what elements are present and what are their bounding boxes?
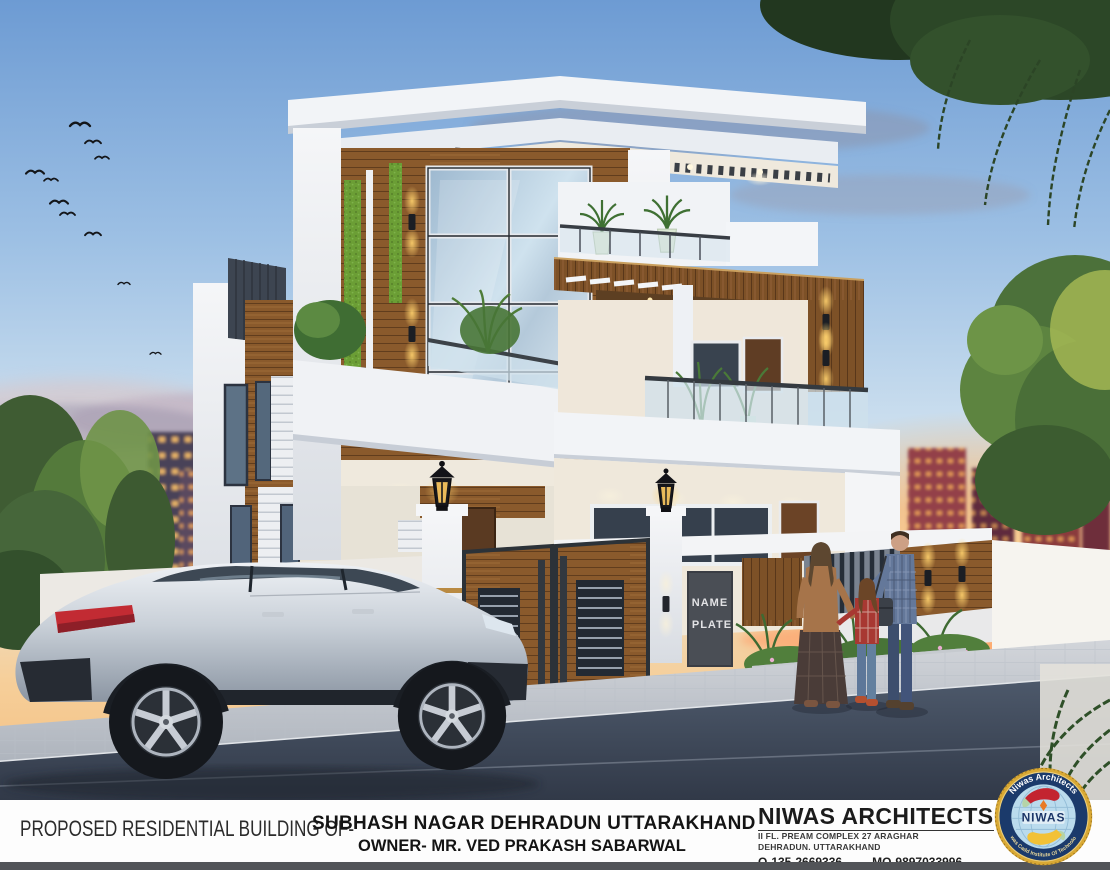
firm-address-line1: II FL. PREAM COMPLEX 27 ARAGHAR	[758, 831, 1008, 842]
architectural-render: NAME PLATE	[0, 0, 1110, 800]
firm-logo: NIWAS Niwas Architects Niwas Cadd Instit…	[992, 765, 1095, 868]
name-plate-line2: PLATE	[692, 619, 732, 631]
rear-wheel	[109, 665, 223, 779]
firm-block: NIWAS ARCHITECTS II FL. PREAM COMPLEX 27…	[758, 805, 1008, 868]
firm-address-line2: DEHRADUN. UTTARAKHAND	[758, 842, 1008, 853]
front-wheel	[398, 662, 506, 770]
caption-owner: OWNER- MR. VED PRAKASH SABARWAL	[358, 837, 686, 856]
caption-strip: PROPOSED RESIDENTIAL BUILDING OF- SUBHAS…	[0, 800, 1110, 862]
name-plate: NAME PLATE	[688, 572, 732, 666]
presentation-board: NAME PLATE	[0, 0, 1110, 870]
bottom-bar	[0, 862, 1110, 870]
firm-name: NIWAS ARCHITECTS	[758, 805, 994, 831]
vertical-garden-strip	[389, 163, 402, 303]
caption-location: SUBHASH NAGAR DEHRADUN UTTARAKHAND	[312, 813, 756, 835]
logo-center-text: NIWAS	[1022, 811, 1066, 825]
caption-prefix: PROPOSED RESIDENTIAL BUILDING OF-	[20, 816, 354, 842]
name-plate-line1: NAME	[692, 597, 728, 609]
